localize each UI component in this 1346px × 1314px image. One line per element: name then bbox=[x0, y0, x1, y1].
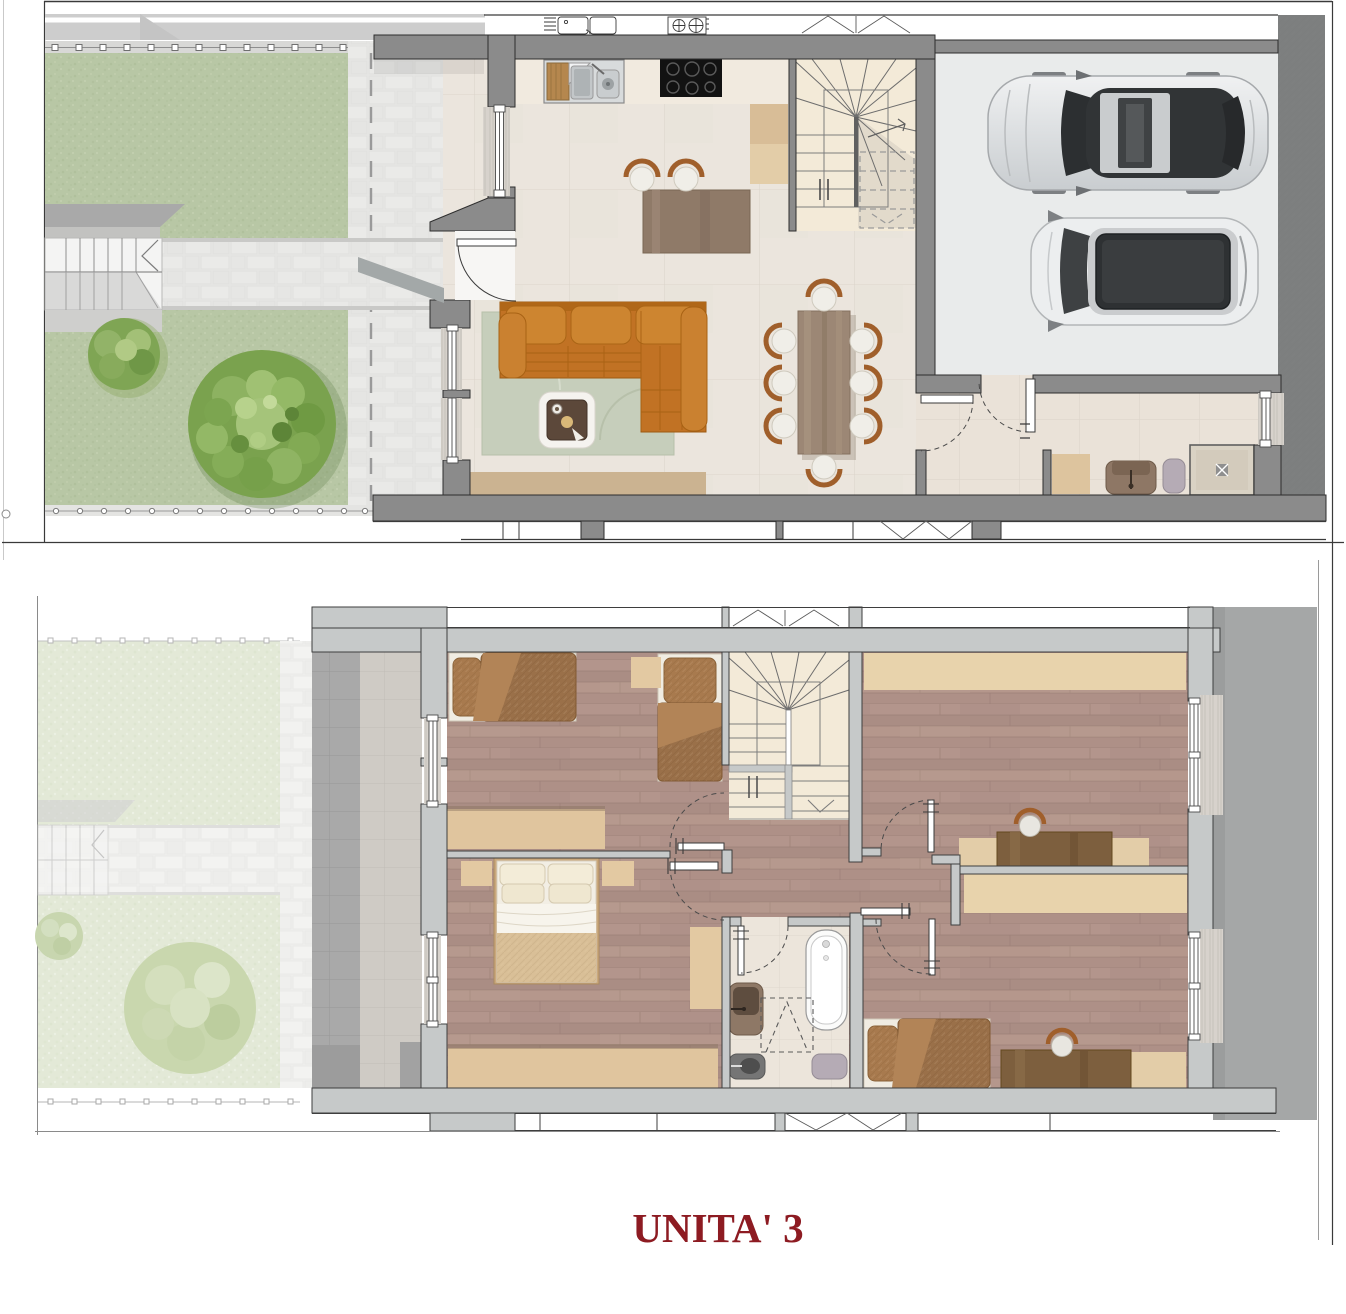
svg-text:UNITA' 3: UNITA' 3 bbox=[632, 1205, 803, 1251]
